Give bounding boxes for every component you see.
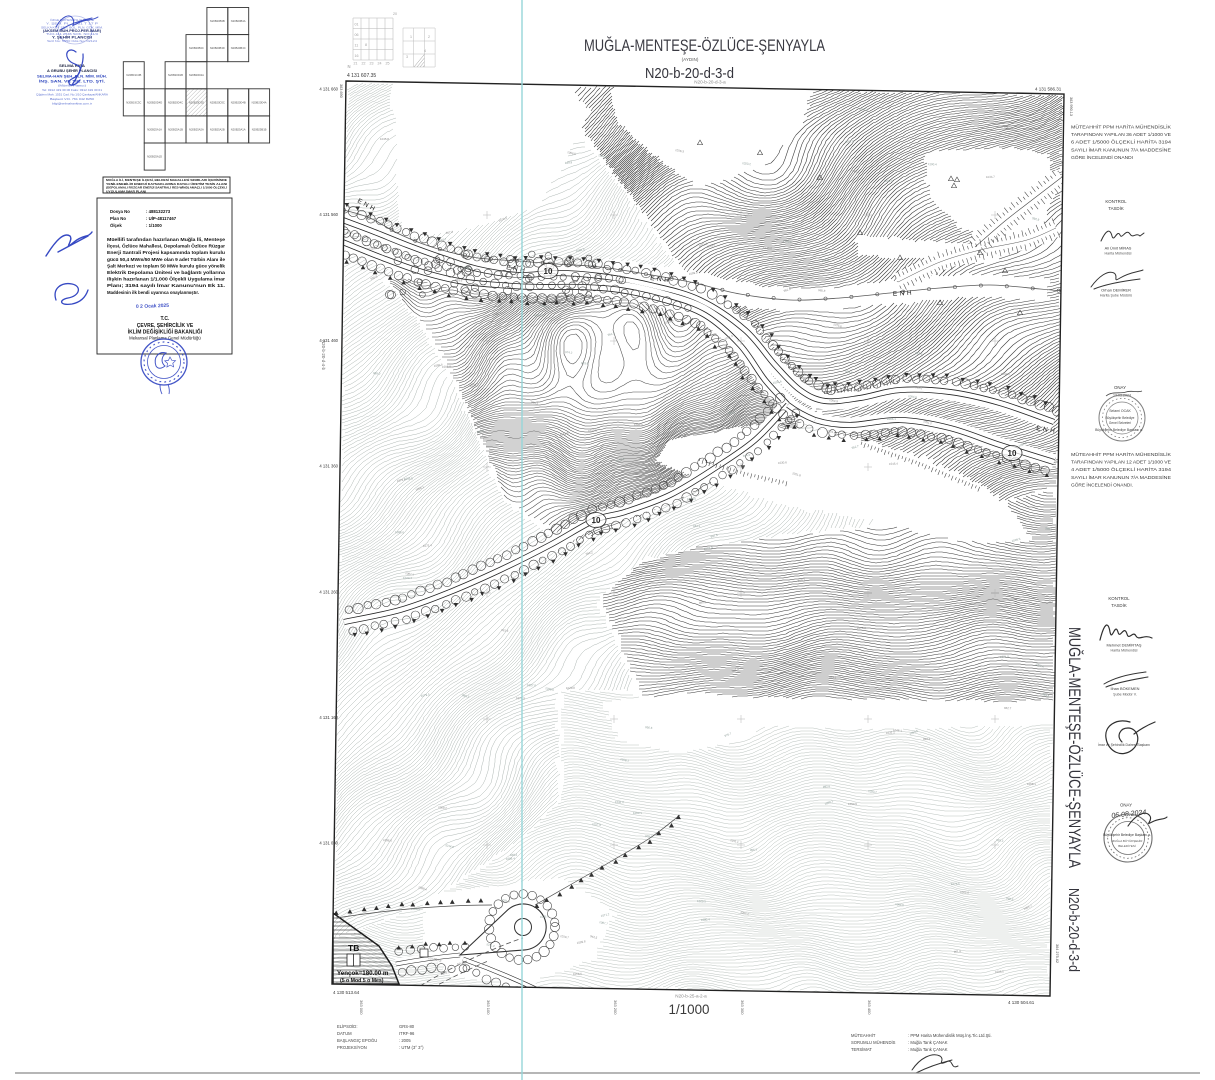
svg-text:1041.5: 1041.5 bbox=[559, 431, 569, 437]
svg-text:1071.2: 1071.2 bbox=[600, 912, 610, 918]
svg-text:Büyükşehir Belediye Başkanı a.: Büyükşehir Belediye Başkanı a. bbox=[1095, 428, 1143, 432]
svg-text:363 300: 363 300 bbox=[740, 1000, 745, 1015]
svg-text:363 690: 363 690 bbox=[339, 84, 343, 98]
svg-text:965.0: 965.0 bbox=[373, 371, 381, 376]
svg-text:1030.6: 1030.6 bbox=[778, 460, 787, 465]
svg-text:955.7: 955.7 bbox=[750, 848, 758, 852]
svg-text:11: 11 bbox=[355, 44, 359, 48]
svg-text:1041.9: 1041.9 bbox=[709, 424, 718, 429]
svg-text:Harita Şube Müdürü: Harita Şube Müdürü bbox=[1100, 294, 1132, 298]
svg-text:gücü 50,4 MWm/50 MWe olan 9 ad: gücü 50,4 MWm/50 MWe olan 9 adet Türbin … bbox=[107, 257, 226, 262]
svg-text:İlhan BÖKEMEN: İlhan BÖKEMEN bbox=[1111, 686, 1140, 691]
svg-text:944.3: 944.3 bbox=[743, 453, 751, 458]
svg-text:Maddesinin ilk bendi uyarınca: Maddesinin ilk bendi uyarınca onaylanmış… bbox=[107, 290, 199, 295]
svg-text:: UTM (3° 3°): : UTM (3° 3°) bbox=[399, 1045, 424, 1050]
svg-text:993.6: 993.6 bbox=[455, 278, 463, 283]
svg-text:1007.5: 1007.5 bbox=[1004, 125, 1014, 130]
svg-text:: Muğla Tarık ÇANAK: : Muğla Tarık ÇANAK bbox=[908, 1040, 948, 1045]
svg-text:N20B20D3D: N20B20D3D bbox=[189, 100, 204, 104]
svg-text:1088.4: 1088.4 bbox=[411, 907, 420, 911]
svg-text:TASDİK: TASDİK bbox=[1111, 603, 1127, 608]
svg-text:363 000: 363 000 bbox=[359, 1000, 364, 1015]
svg-text:952.7: 952.7 bbox=[851, 444, 859, 450]
svg-text:Elektrik Depolama Ünitesi ve b: Elektrik Depolama Ünitesi ve bağlantı yo… bbox=[107, 270, 226, 275]
svg-text:N20B25A1B: N20B25A1B bbox=[168, 128, 183, 132]
svg-text:Ali Ümit MİRAS: Ali Ümit MİRAS bbox=[1105, 246, 1132, 251]
svg-text:1079.0: 1079.0 bbox=[857, 626, 866, 630]
svg-text:GÖRE İNCELENDİ ONANDI: GÖRE İNCELENDİ ONANDI bbox=[1071, 155, 1133, 160]
svg-text:MÜTEAHHİT PPM HARİTA MÜH: MÜTEAHHİT PPM HARİTA MÜHENDİSLİK bbox=[1071, 125, 1171, 130]
svg-text:TERSİMAT: TERSİMAT bbox=[851, 1047, 872, 1052]
svg-text:Başkent V.D. 761 042 8250: Başkent V.D. 761 042 8250 bbox=[50, 97, 94, 101]
svg-text:1059.5: 1059.5 bbox=[457, 962, 466, 966]
svg-text:Enerji Santrali Projesi kapsam: Enerji Santrali Projesi kapsamında topla… bbox=[107, 250, 225, 255]
svg-text:1019.7: 1019.7 bbox=[560, 934, 570, 940]
svg-text:1/1000: 1/1000 bbox=[669, 1001, 710, 1017]
svg-text:955.3: 955.3 bbox=[996, 838, 1004, 843]
svg-text:İKLİM DEĞİŞİKLİĞİ BAKANLIĞI: İKLİM DEĞİŞİKLİĞİ BAKANLIĞI bbox=[128, 328, 203, 336]
svg-text:984.1: 984.1 bbox=[579, 503, 587, 509]
svg-text:Ölçek: Ölçek bbox=[110, 223, 122, 228]
svg-text:942.5: 942.5 bbox=[590, 934, 598, 940]
svg-text:363 400: 363 400 bbox=[867, 1000, 872, 1015]
svg-text:1045.4: 1045.4 bbox=[889, 462, 898, 466]
svg-text:1053.5: 1053.5 bbox=[909, 729, 919, 736]
svg-text:4 131 607.35: 4 131 607.35 bbox=[347, 73, 376, 79]
svg-text:1022.3: 1022.3 bbox=[703, 545, 713, 551]
svg-text:1080.4: 1080.4 bbox=[701, 917, 710, 922]
svg-text:949.9: 949.9 bbox=[565, 160, 573, 165]
svg-text:N20B20B4C: N20B20B4C bbox=[231, 46, 246, 50]
svg-text:1073.4: 1073.4 bbox=[423, 543, 433, 548]
svg-text:A GRUBU ŞEHİR PLANCISI: A GRUBU ŞEHİR PLANCISI bbox=[47, 69, 97, 73]
svg-text:N20B25B1B: N20B25B1B bbox=[252, 128, 267, 132]
svg-text:ilişkin hazırlanan 1/1.000 Ölç: ilişkin hazırlanan 1/1.000 Ölçekli Uygul… bbox=[107, 277, 225, 282]
svg-text:SELMA-HAN ŞEH. PLN. MİM. MÜH.: SELMA-HAN ŞEH. PLN. MİM. MÜH. bbox=[37, 75, 107, 79]
svg-text:1094.9: 1094.9 bbox=[908, 394, 918, 399]
svg-text:976.7: 976.7 bbox=[724, 731, 733, 738]
svg-text:N20B25A1A: N20B25A1A bbox=[231, 128, 246, 132]
svg-text:Harita Mühendisi: Harita Mühendisi bbox=[1111, 649, 1138, 653]
svg-text:GRS-80: GRS-80 bbox=[399, 1024, 415, 1029]
svg-text:MUĞLA BÜYÜKŞEHİR: MUĞLA BÜYÜKŞEHİR bbox=[1112, 838, 1144, 843]
svg-text:TARAFINDAN YAPILAN 36 ADE: TARAFINDAN YAPILAN 36 ADET 1/1000 VE bbox=[1071, 132, 1171, 137]
svg-text:1002.0: 1002.0 bbox=[960, 890, 970, 895]
svg-text:Yençok=180.00 m: Yençok=180.00 m bbox=[337, 970, 389, 977]
svg-text:N20B20B3D: N20B20B3D bbox=[210, 46, 225, 50]
svg-text:980.8: 980.8 bbox=[818, 288, 826, 293]
svg-text:4 130 513.64: 4 130 513.64 bbox=[333, 990, 360, 995]
svg-text:Mekansal Planlama Genel Müdürl: Mekansal Planlama Genel Müdürlüğü bbox=[129, 336, 201, 341]
svg-text:4: 4 bbox=[424, 49, 426, 53]
svg-text:1063.1: 1063.1 bbox=[633, 811, 642, 815]
svg-text:UYGULAMA İMAR PLANI: UYGULAMA İMAR PLANI bbox=[106, 189, 146, 193]
svg-text:978.2: 978.2 bbox=[645, 834, 653, 839]
svg-text:10: 10 bbox=[1008, 449, 1017, 458]
svg-text:1016.3: 1016.3 bbox=[675, 148, 685, 154]
svg-text:25: 25 bbox=[386, 62, 390, 66]
svg-text:1007.1: 1007.1 bbox=[740, 910, 750, 916]
svg-text:ITRF-96: ITRF-96 bbox=[399, 1031, 415, 1036]
svg-text:992.6: 992.6 bbox=[923, 737, 931, 741]
svg-text:1007.0: 1007.0 bbox=[634, 423, 643, 427]
svg-text:İmar ve Şehircilik Dairesi Baş: İmar ve Şehircilik Dairesi Başkanı bbox=[1098, 742, 1150, 747]
svg-text:Tel: 0312 419 30 00 Faks: 0312: Tel: 0312 419 30 00 Faks: 0312 419 30 01 bbox=[42, 88, 102, 92]
svg-text:1029.8: 1029.8 bbox=[566, 686, 575, 690]
svg-text:21: 21 bbox=[354, 62, 358, 66]
svg-text:N20B20D4C: N20B20D4C bbox=[168, 100, 183, 104]
svg-text:1087.7: 1087.7 bbox=[599, 920, 609, 926]
svg-text:965.4: 965.4 bbox=[852, 169, 860, 174]
svg-text:1031.0: 1031.0 bbox=[615, 800, 624, 804]
svg-text:4 131 260: 4 131 260 bbox=[319, 589, 338, 594]
svg-text:TB: TB bbox=[348, 943, 359, 953]
svg-text:BELEDİYESİ: BELEDİYESİ bbox=[1118, 843, 1136, 848]
svg-text:1096.0: 1096.0 bbox=[383, 838, 392, 843]
svg-text:(5 o Mod 5 o Mes): (5 o Mod 5 o Mes) bbox=[340, 978, 384, 984]
svg-text:959.4: 959.4 bbox=[845, 369, 853, 375]
svg-text:363 990.13: 363 990.13 bbox=[1069, 97, 1073, 116]
svg-text:1: 1 bbox=[410, 35, 412, 39]
svg-text:N20B20B3C: N20B20B3C bbox=[189, 46, 204, 50]
svg-text:961.9: 961.9 bbox=[607, 331, 615, 337]
svg-text:N20-b-20-d-3-a: N20-b-20-d-3-a bbox=[694, 80, 726, 85]
svg-text:992.6: 992.6 bbox=[823, 784, 831, 789]
svg-text:N20B19C3B: N20B19C3B bbox=[126, 73, 141, 77]
svg-text:GÖRE İNCELENDİ ONANDI.: GÖRE İNCELENDİ ONANDI. bbox=[1071, 482, 1133, 487]
svg-text:1018.1: 1018.1 bbox=[620, 757, 630, 763]
svg-text:1086.4: 1086.4 bbox=[506, 856, 515, 861]
svg-text:1079.9: 1079.9 bbox=[516, 696, 525, 700]
svg-text:6 ADET 1/5000 ÖLÇEKLİ H: 6 ADET 1/5000 ÖLÇEKLİ HARİTA 3194 bbox=[1071, 140, 1172, 145]
svg-text:Şalt Merkezi ve toplam 50 MWe: Şalt Merkezi ve toplam 50 MWe kurulu güc… bbox=[107, 263, 226, 268]
svg-text:ÇEVRE, ŞEHİRCİLİK VE: ÇEVRE, ŞEHİRCİLİK VE bbox=[137, 322, 194, 329]
svg-text:1047.9: 1047.9 bbox=[859, 107, 869, 112]
svg-text:Orhan DEMİRER: Orhan DEMİRER bbox=[1101, 288, 1131, 293]
svg-text:974.2: 974.2 bbox=[565, 350, 573, 355]
svg-text:N20B20D2A: N20B20D2A bbox=[189, 73, 204, 77]
svg-text:363 200: 363 200 bbox=[613, 1000, 618, 1015]
svg-text:998.7: 998.7 bbox=[1045, 526, 1053, 532]
svg-text:1043.1: 1043.1 bbox=[534, 313, 543, 317]
svg-text:1079.5: 1079.5 bbox=[420, 692, 430, 698]
svg-text:ENH: ENH bbox=[1036, 425, 1058, 435]
svg-text:06: 06 bbox=[355, 33, 359, 37]
svg-text:N20B20D4D: N20B20D4D bbox=[147, 100, 162, 104]
svg-text:956.6: 956.6 bbox=[370, 274, 379, 281]
svg-text:1003.6: 1003.6 bbox=[772, 379, 782, 385]
svg-text:Çiğdem Mah. 1551 Cad. No:1/10: Çiğdem Mah. 1551 Cad. No:1/10 Çankaya/AN… bbox=[36, 93, 108, 97]
svg-text:4 131 060: 4 131 060 bbox=[319, 841, 338, 846]
svg-text:TASDİK: TASDİK bbox=[1108, 206, 1124, 211]
svg-text:N20B20B3B: N20B20B3B bbox=[210, 19, 225, 23]
svg-text:T.C.: T.C. bbox=[161, 316, 171, 322]
svg-text:962.7: 962.7 bbox=[1004, 706, 1012, 710]
svg-text:1033.7: 1033.7 bbox=[868, 789, 878, 794]
svg-text:ENH: ENH bbox=[893, 290, 915, 298]
svg-text:DATUM: DATUM bbox=[337, 1031, 352, 1036]
svg-text:Genel Sekreteri: Genel Sekreteri bbox=[1109, 421, 1131, 425]
svg-text:1023.4: 1023.4 bbox=[403, 576, 412, 580]
svg-text:991.6: 991.6 bbox=[501, 628, 509, 633]
svg-text:4 130 504.61: 4 130 504.61 bbox=[1008, 1000, 1035, 1005]
svg-text:KONTROL: KONTROL bbox=[1108, 596, 1130, 601]
svg-text:Harita Mühendisi: Harita Mühendisi bbox=[1105, 252, 1132, 256]
svg-text:1002.6: 1002.6 bbox=[884, 179, 893, 183]
svg-text:N20B20D4B: N20B20D4B bbox=[231, 100, 246, 104]
svg-text:980.1: 980.1 bbox=[744, 212, 752, 218]
svg-text:956.6: 956.6 bbox=[645, 725, 653, 730]
svg-text:24: 24 bbox=[378, 62, 382, 66]
svg-text:954.1: 954.1 bbox=[829, 675, 837, 679]
svg-text:16: 16 bbox=[355, 54, 359, 58]
svg-text:N20B20B4A: N20B20B4A bbox=[231, 19, 246, 23]
svg-text:1090.5: 1090.5 bbox=[575, 247, 585, 253]
svg-text:Planı; 3194 sayılı İmar Kanunu: Planı; 3194 sayılı İmar Kanunu'nun Ek 11… bbox=[107, 283, 225, 288]
svg-text:SAYILI İMAR KANUNUN 7/A MA: SAYILI İMAR KANUNUN 7/A MADDESİNE bbox=[1071, 475, 1171, 480]
svg-text:992.9: 992.9 bbox=[1032, 216, 1040, 222]
svg-text:1009.5: 1009.5 bbox=[404, 476, 413, 481]
svg-text:1103.5: 1103.5 bbox=[783, 239, 792, 244]
svg-text:MÜTEAHHİT PPM HARİTA MÜH: MÜTEAHHİT PPM HARİTA MÜHENDİSLİK bbox=[1071, 452, 1171, 457]
svg-text:967.2: 967.2 bbox=[445, 230, 453, 235]
svg-text:364 275.62: 364 275.62 bbox=[1055, 944, 1059, 963]
svg-text:Selami OCAK: Selami OCAK bbox=[1109, 409, 1131, 413]
svg-text:Şube Müdür V.: Şube Müdür V. bbox=[1113, 693, 1137, 697]
svg-text:23: 23 bbox=[370, 62, 374, 66]
svg-text:N20B20D3C: N20B20D3C bbox=[210, 100, 225, 104]
svg-text:İlçesi, Özlüce Mahallesi, Depo: İlçesi, Özlüce Mahallesi, Depolamalı Özl… bbox=[107, 244, 225, 249]
svg-text:4 131 660: 4 131 660 bbox=[319, 87, 338, 92]
svg-text:SAYILI İMAR KANUNUN 7/A MA: SAYILI İMAR KANUNUN 7/A MADDESİNE bbox=[1071, 147, 1171, 152]
svg-text:1085.6: 1085.6 bbox=[395, 530, 404, 534]
svg-text:: Muğla Tarık ÇANAK: : Muğla Tarık ÇANAK bbox=[908, 1047, 948, 1052]
svg-text:4 131 360: 4 131 360 bbox=[319, 464, 338, 469]
svg-text:01: 01 bbox=[355, 23, 359, 27]
svg-text:N20B25A2B: N20B25A2B bbox=[210, 128, 225, 132]
svg-text:N20B20D1B: N20B20D1B bbox=[168, 73, 183, 77]
svg-text:Dosya No: Dosya No bbox=[110, 209, 130, 214]
svg-text:bilgi@selmahankisa.com.tr: bilgi@selmahankisa.com.tr bbox=[52, 101, 92, 105]
svg-text:: 1/1000: : 1/1000 bbox=[146, 223, 162, 228]
svg-text:SORUMLU MÜHENDİS: SORUMLU MÜHENDİS bbox=[851, 1040, 896, 1045]
svg-text:: PPM Harita Mühendislik Müş.İ: : PPM Harita Mühendislik Müş.İnş.Tic.Ltd… bbox=[908, 1033, 992, 1038]
svg-text:1084.0: 1084.0 bbox=[895, 902, 905, 907]
svg-text:4 ADET 1/5000 ÖLÇEKLİ H: 4 ADET 1/5000 ÖLÇEKLİ HARİTA 3194 bbox=[1071, 467, 1172, 472]
svg-text:: 488132273: : 488132273 bbox=[146, 209, 171, 214]
svg-text:N20B20D4A: N20B20D4A bbox=[252, 100, 267, 104]
svg-text:TARAFINDAN YAPILAN 12 ADE: TARAFINDAN YAPILAN 12 ADET 1/1000 VE bbox=[1071, 460, 1171, 465]
svg-text:1058.6: 1058.6 bbox=[573, 972, 582, 976]
svg-text:N20-b-20-d-3-d: N20-b-20-d-3-d bbox=[1065, 888, 1082, 972]
svg-text:1014.6: 1014.6 bbox=[445, 843, 455, 849]
svg-text:1045.8: 1045.8 bbox=[380, 137, 389, 141]
svg-text:20: 20 bbox=[393, 12, 397, 16]
svg-text:1076.5: 1076.5 bbox=[951, 882, 960, 886]
svg-text:1006.9: 1006.9 bbox=[442, 365, 451, 369]
svg-text:BAŞLANGIÇ EPOĞU: BAŞLANGIÇ EPOĞU bbox=[337, 1038, 377, 1043]
svg-text:1023.2: 1023.2 bbox=[742, 161, 752, 166]
svg-text:363 100: 363 100 bbox=[486, 1000, 491, 1015]
svg-text:(AYDIN): (AYDIN) bbox=[682, 57, 699, 62]
svg-text:10: 10 bbox=[544, 267, 553, 276]
svg-text:1064.4: 1064.4 bbox=[540, 303, 550, 309]
svg-text:PROJEKSİYON: PROJEKSİYON bbox=[337, 1045, 367, 1050]
svg-text:22: 22 bbox=[362, 62, 366, 66]
svg-text:983.2: 983.2 bbox=[728, 411, 736, 415]
svg-text:MUĞLA-MENTEŞE-ÖZLÜCE-ŞENYAYLA: MUĞLA-MENTEŞE-ÖZLÜCE-ŞENYAYLA bbox=[1065, 627, 1084, 868]
svg-text:1090.9: 1090.9 bbox=[848, 802, 857, 806]
svg-text:Plan No: Plan No bbox=[110, 216, 126, 221]
svg-text:1101.7: 1101.7 bbox=[827, 429, 837, 435]
svg-text:1098.6: 1098.6 bbox=[1001, 372, 1010, 376]
svg-text:987.5: 987.5 bbox=[915, 351, 923, 356]
svg-text:1034.7: 1034.7 bbox=[986, 175, 995, 179]
svg-text:1027.8: 1027.8 bbox=[592, 822, 602, 827]
svg-text:968.9: 968.9 bbox=[1006, 896, 1014, 902]
svg-text:10: 10 bbox=[592, 516, 601, 525]
svg-text:MÜTEAHHİT: MÜTEAHHİT bbox=[851, 1033, 876, 1038]
svg-text:4 131 560: 4 131 560 bbox=[319, 212, 338, 217]
svg-text:KONTROL: KONTROL bbox=[1105, 199, 1127, 204]
svg-text:1100.4: 1100.4 bbox=[928, 162, 937, 166]
svg-text:1009.2: 1009.2 bbox=[438, 805, 448, 810]
svg-text:ONAY: ONAY bbox=[1114, 385, 1126, 390]
svg-text:980.0: 980.0 bbox=[699, 600, 707, 605]
svg-text:941.1: 941.1 bbox=[693, 524, 701, 528]
svg-text:4 131 160: 4 131 160 bbox=[319, 715, 338, 720]
svg-text:N20B25A1D: N20B25A1D bbox=[147, 155, 162, 159]
svg-text:2: 2 bbox=[428, 35, 430, 39]
svg-text:N20B25A1A: N20B25A1A bbox=[147, 128, 162, 132]
svg-text:1099.8: 1099.8 bbox=[576, 939, 586, 945]
svg-text:1029.5: 1029.5 bbox=[697, 899, 706, 903]
svg-text:0 2 Ocak 2025: 0 2 Ocak 2025 bbox=[136, 303, 169, 310]
svg-text:N20-b-20-d-4-b: N20-b-20-d-4-b bbox=[321, 340, 326, 371]
svg-text:1027.6: 1027.6 bbox=[527, 683, 536, 687]
svg-text:N20B19C3C: N20B19C3C bbox=[126, 100, 141, 104]
svg-text:1043.8: 1043.8 bbox=[763, 246, 772, 250]
svg-text:MUĞLA-MENTEŞE-ÖZLÜCE-ŞENYAYLA: MUĞLA-MENTEŞE-ÖZLÜCE-ŞENYAYLA bbox=[584, 36, 825, 55]
svg-text:Büyükşehir Belediye Başkanı a.: Büyükşehir Belediye Başkanı a. bbox=[1103, 833, 1151, 837]
svg-text:N20B25A2A: N20B25A2A bbox=[189, 128, 204, 132]
svg-text:ONAY: ONAY bbox=[1120, 803, 1132, 808]
svg-text:N20-b-25-a-2-a: N20-b-25-a-2-a bbox=[675, 994, 707, 999]
svg-text:3: 3 bbox=[406, 55, 408, 59]
svg-text:4 131 586.31: 4 131 586.31 bbox=[1035, 87, 1062, 92]
svg-text:: UİP-48117467: : UİP-48117467 bbox=[146, 216, 177, 221]
svg-text:Müellifi tarafından hazırlanan: Müellifi tarafından hazırlanan Muğla İli… bbox=[107, 237, 226, 242]
svg-text:1077.5: 1077.5 bbox=[588, 429, 597, 433]
svg-text:1011.1: 1011.1 bbox=[730, 838, 740, 844]
svg-text:Büyükşehir Belediye: Büyükşehir Belediye bbox=[1106, 416, 1135, 420]
svg-text:N: N bbox=[348, 64, 351, 69]
svg-text:8: 8 bbox=[365, 43, 367, 47]
svg-text:1040.0: 1040.0 bbox=[687, 497, 696, 501]
svg-text:1021.8: 1021.8 bbox=[792, 471, 802, 478]
svg-text:1089.4: 1089.4 bbox=[418, 885, 428, 892]
svg-text:1006.1: 1006.1 bbox=[887, 417, 896, 421]
svg-text:1099.0: 1099.0 bbox=[688, 270, 698, 276]
svg-text:960.7: 960.7 bbox=[797, 578, 805, 583]
svg-text:1068.1: 1068.1 bbox=[1027, 782, 1036, 786]
svg-text:961.6: 961.6 bbox=[954, 949, 962, 954]
svg-text:1104.0: 1104.0 bbox=[598, 153, 608, 159]
svg-text:1071.0: 1071.0 bbox=[1000, 655, 1009, 659]
svg-text:1099.5: 1099.5 bbox=[1011, 537, 1021, 543]
svg-text:963.6: 963.6 bbox=[581, 361, 589, 366]
svg-text:ELİPSOİD:: ELİPSOİD: bbox=[337, 1024, 357, 1029]
svg-text:Mehmet DEMİRTAŞ: Mehmet DEMİRTAŞ bbox=[1107, 643, 1142, 648]
svg-text:1035.3: 1035.3 bbox=[469, 382, 479, 388]
svg-text:: 2005: : 2005 bbox=[399, 1038, 411, 1043]
svg-text:1005.5: 1005.5 bbox=[995, 970, 1004, 974]
svg-text:Sicil No: 5550 Oda No: 02124: Sicil No: 5550 Oda No: 02124 bbox=[47, 39, 98, 43]
svg-text:1032.2: 1032.2 bbox=[886, 730, 895, 735]
